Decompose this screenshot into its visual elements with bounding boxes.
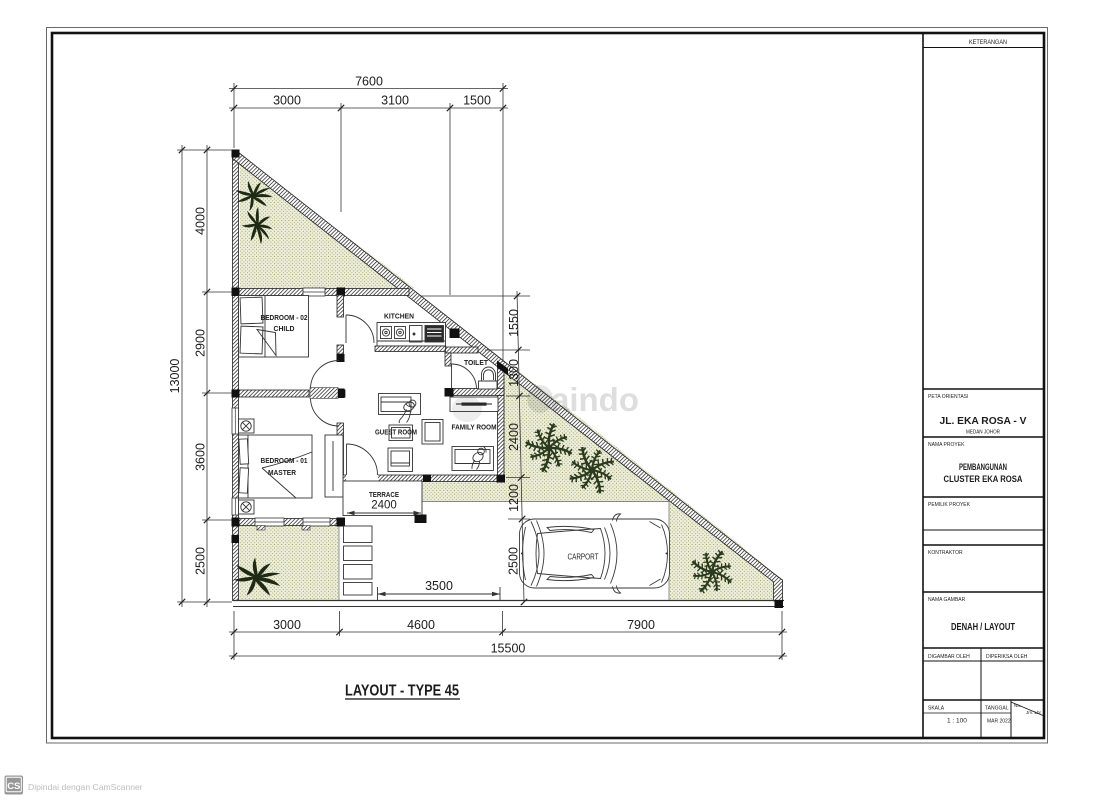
svg-text:SKALA: SKALA	[928, 706, 945, 712]
svg-text:JL. EKA ROSA - V: JL. EKA ROSA - V	[940, 416, 1027, 427]
svg-text:2900: 2900	[194, 329, 208, 357]
svg-text:BEDROOM - 01: BEDROOM - 01	[261, 458, 308, 465]
svg-text:TERRACE: TERRACE	[369, 492, 399, 499]
svg-text:KITCHEN: KITCHEN	[384, 314, 414, 321]
svg-text:TOILET: TOILET	[464, 360, 489, 367]
svg-text:CARPORT: CARPORT	[568, 552, 599, 562]
svg-text:CS: CS	[7, 781, 20, 792]
svg-text:1300: 1300	[507, 359, 521, 387]
svg-text:DIPERIKSA OLEH: DIPERIKSA OLEH	[986, 654, 1028, 660]
svg-text:2500: 2500	[194, 547, 208, 575]
svg-text:Dipindai dengan CamScanner: Dipindai dengan CamScanner	[28, 782, 143, 792]
svg-text:1200: 1200	[507, 484, 521, 512]
svg-text:PETA ORIENTASI: PETA ORIENTASI	[928, 394, 968, 400]
svg-text:3600: 3600	[194, 443, 208, 471]
svg-text:3500: 3500	[425, 579, 453, 593]
svg-text:No.: No.	[1014, 703, 1021, 708]
svg-text:TANGGAL: TANGGAL	[985, 706, 1009, 712]
svg-text:NAMA GAMBAR: NAMA GAMBAR	[928, 597, 966, 603]
svg-text:13000: 13000	[168, 359, 182, 394]
svg-text:CLUSTER EKA ROSA: CLUSTER EKA ROSA	[944, 474, 1023, 484]
svg-text:CHILD: CHILD	[274, 326, 295, 333]
svg-text:DENAH / LAYOUT: DENAH / LAYOUT	[951, 622, 1015, 633]
svg-text:2400: 2400	[371, 500, 397, 512]
svg-text:3100: 3100	[381, 94, 409, 108]
svg-text:Jm. Lbr: Jm. Lbr	[1026, 710, 1042, 715]
svg-text:LAYOUT - TYPE 45: LAYOUT - TYPE 45	[345, 683, 459, 700]
svg-text:KETERANGAN: KETERANGAN	[969, 39, 1007, 46]
svg-text:1500: 1500	[463, 94, 491, 108]
svg-text:MEDAN JOHOR: MEDAN JOHOR	[966, 430, 1000, 436]
svg-text:7900: 7900	[627, 618, 655, 632]
svg-text:NAMA PROYEK: NAMA PROYEK	[928, 442, 965, 448]
svg-text:4600: 4600	[407, 618, 435, 632]
svg-text:15500: 15500	[491, 642, 526, 656]
svg-text:aindo: aindo	[551, 381, 639, 418]
svg-text:3000: 3000	[273, 618, 301, 632]
svg-text:1550: 1550	[507, 309, 521, 337]
svg-text:BEDROOM - 02: BEDROOM - 02	[261, 315, 308, 322]
svg-text:PEMILIK PROYEK: PEMILIK PROYEK	[928, 502, 971, 508]
svg-text:MASTER: MASTER	[268, 470, 296, 477]
svg-text:FAMILY ROOM: FAMILY ROOM	[452, 425, 497, 432]
svg-text:2400: 2400	[507, 423, 521, 451]
svg-text:DIGAMBAR OLEH: DIGAMBAR OLEH	[928, 654, 970, 660]
svg-text:GUEST ROOM: GUEST ROOM	[375, 430, 417, 437]
svg-text:KONTRAKTOR: KONTRAKTOR	[928, 550, 963, 556]
svg-text:2500: 2500	[507, 547, 521, 575]
svg-text:4000: 4000	[194, 207, 208, 235]
svg-text:7600: 7600	[355, 75, 383, 89]
svg-text:PEMBANGUNAN: PEMBANGUNAN	[959, 462, 1007, 472]
svg-text:MAR 2022: MAR 2022	[987, 719, 1011, 725]
svg-text:3000: 3000	[273, 94, 301, 108]
svg-text:1 : 100: 1 : 100	[947, 718, 967, 725]
